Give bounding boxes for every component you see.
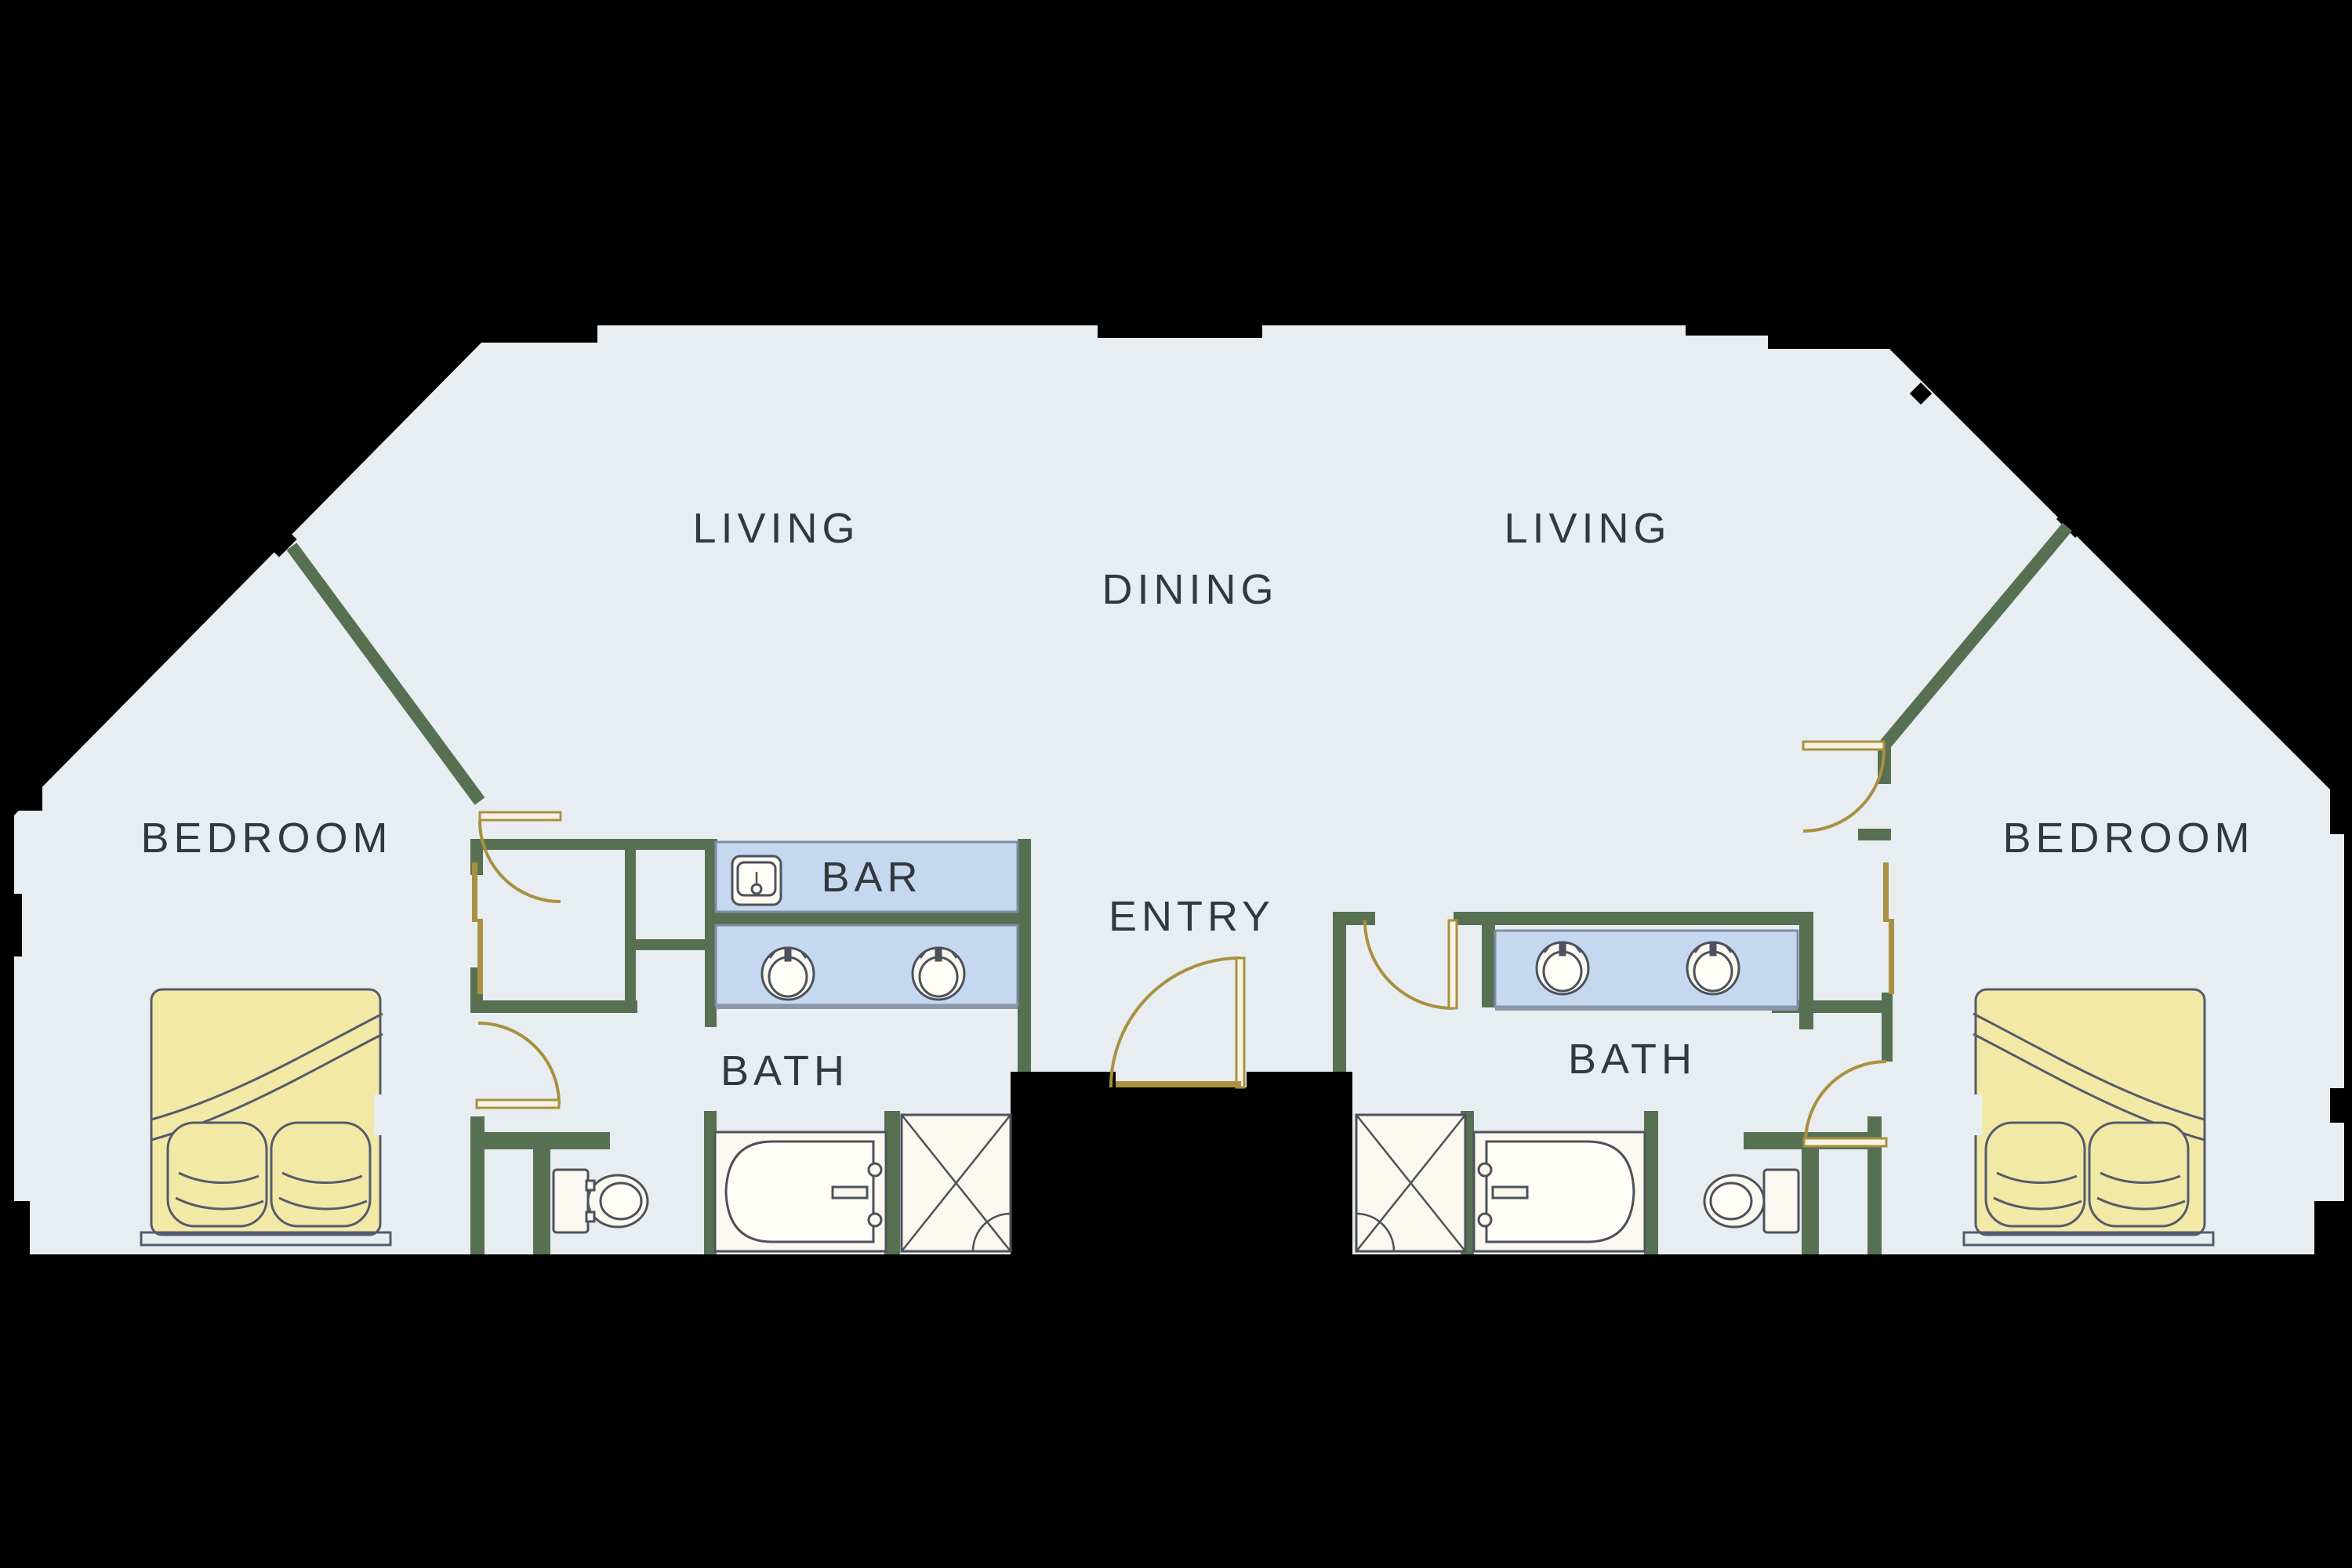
sink-icon bbox=[913, 948, 964, 1000]
floor-plan: LIVING DINING LIVING BEDROOM BEDROOM BAR… bbox=[0, 0, 2352, 1568]
room-label-living-right: LIVING bbox=[1504, 505, 1671, 552]
room-label-bedroom-left: BEDROOM bbox=[140, 815, 392, 862]
entry-door-leaf bbox=[1236, 958, 1244, 1087]
shower-icon-right bbox=[1356, 1115, 1465, 1251]
room-label-bath-left: BATH bbox=[720, 1047, 849, 1094]
toilet-icon-left bbox=[554, 1170, 648, 1232]
entry-door-sill bbox=[1116, 1081, 1241, 1087]
door-leaf bbox=[1449, 920, 1457, 1008]
bar-sink-icon bbox=[732, 856, 781, 905]
bed-icon-right bbox=[1964, 989, 2213, 1245]
door-leaf bbox=[1803, 742, 1884, 750]
vanity-counter-left bbox=[716, 925, 1018, 1005]
room-label-living-left: LIVING bbox=[692, 505, 859, 552]
bed-icon-left bbox=[141, 989, 390, 1245]
room-label-bath-right: BATH bbox=[1568, 1036, 1697, 1083]
toilet-icon-right bbox=[1704, 1170, 1798, 1232]
door-leaf bbox=[477, 1100, 559, 1108]
sink-icon bbox=[762, 948, 814, 1000]
shower-icon-left bbox=[902, 1115, 1011, 1251]
room-label-dining: DINING bbox=[1102, 566, 1279, 613]
room-label-bar: BAR bbox=[821, 854, 922, 901]
room-label-entry: ENTRY bbox=[1109, 893, 1275, 940]
door-leaf bbox=[1804, 1138, 1886, 1146]
room-label-bedroom-right: BEDROOM bbox=[2002, 815, 2254, 862]
sink-icon bbox=[1687, 942, 1739, 994]
sink-icon bbox=[1537, 942, 1588, 994]
bathtub-icon-left bbox=[715, 1132, 886, 1251]
door-leaf bbox=[480, 812, 561, 820]
bathtub-icon-right bbox=[1474, 1132, 1645, 1251]
